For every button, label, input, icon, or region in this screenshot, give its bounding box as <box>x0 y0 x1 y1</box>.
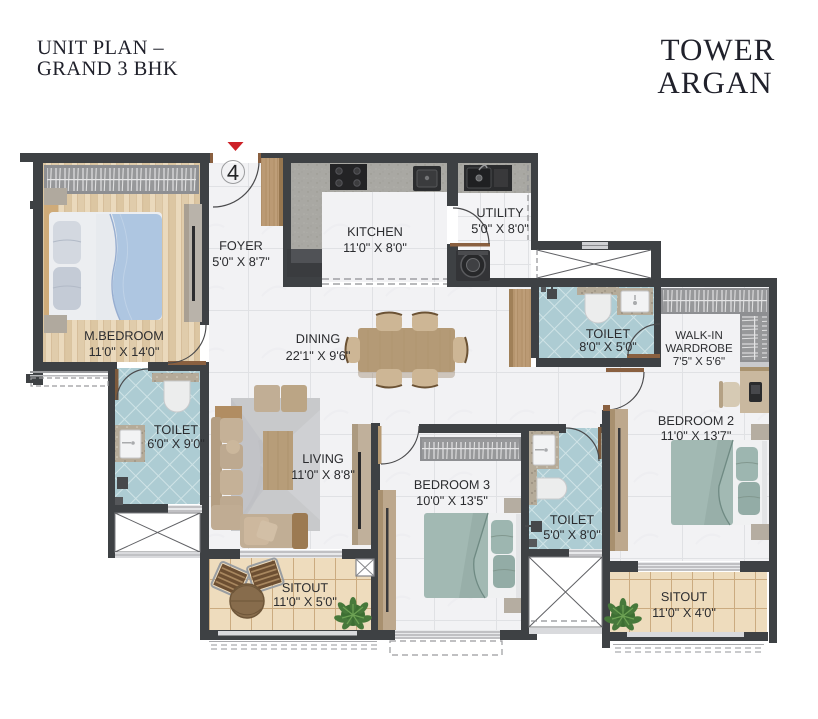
svg-text:11'0" X 13'7": 11'0" X 13'7" <box>661 429 732 443</box>
svg-text:6'0" X 9'0": 6'0" X 9'0" <box>147 437 205 451</box>
svg-text:GRAND 3 BHK: GRAND 3 BHK <box>37 58 178 80</box>
svg-text:WARDROBE: WARDROBE <box>665 343 733 355</box>
svg-text:7'5" X 5'6": 7'5" X 5'6" <box>673 356 725 368</box>
svg-text:5'0" X 8'0": 5'0" X 8'0" <box>543 528 601 542</box>
svg-text:BEDROOM 3: BEDROOM 3 <box>414 478 490 492</box>
svg-text:M.BEDROOM: M.BEDROOM <box>84 329 164 343</box>
svg-text:11'0" X 8'0": 11'0" X 8'0" <box>343 241 407 255</box>
svg-text:10'0" X 13'5": 10'0" X 13'5" <box>416 494 488 508</box>
svg-text:KITCHEN: KITCHEN <box>347 225 403 239</box>
svg-text:8'0" X 5'0": 8'0" X 5'0" <box>579 340 637 354</box>
svg-text:22'1" X 9'6": 22'1" X 9'6" <box>286 349 351 363</box>
svg-text:DINING: DINING <box>296 332 340 346</box>
svg-text:11'0" X 14'0": 11'0" X 14'0" <box>89 345 160 359</box>
svg-text:5'0" X 8'0": 5'0" X 8'0" <box>471 222 529 236</box>
svg-text:TOILET: TOILET <box>154 423 198 437</box>
svg-text:11'0" X 5'0": 11'0" X 5'0" <box>273 595 337 609</box>
svg-text:SITOUT: SITOUT <box>661 590 708 604</box>
svg-text:5'0" X 8'7": 5'0" X 8'7" <box>212 255 270 269</box>
svg-text:SITOUT: SITOUT <box>282 581 329 595</box>
svg-text:ARGAN: ARGAN <box>657 65 772 100</box>
svg-text:BEDROOM 2: BEDROOM 2 <box>658 414 734 428</box>
svg-text:LIVING: LIVING <box>302 452 344 466</box>
svg-text:TOILET: TOILET <box>586 327 630 341</box>
svg-text:TOILET: TOILET <box>550 513 594 527</box>
svg-text:4: 4 <box>227 160 239 185</box>
svg-text:FOYER: FOYER <box>219 239 263 253</box>
svg-text:UNIT PLAN –: UNIT PLAN – <box>37 37 164 59</box>
svg-text:11'0" X 8'8": 11'0" X 8'8" <box>291 468 355 482</box>
svg-text:TOWER: TOWER <box>661 32 776 67</box>
svg-text:WALK-IN: WALK-IN <box>675 330 723 342</box>
svg-text:UTILITY: UTILITY <box>476 206 524 220</box>
svg-text:11'0" X 4'0": 11'0" X 4'0" <box>652 606 716 620</box>
